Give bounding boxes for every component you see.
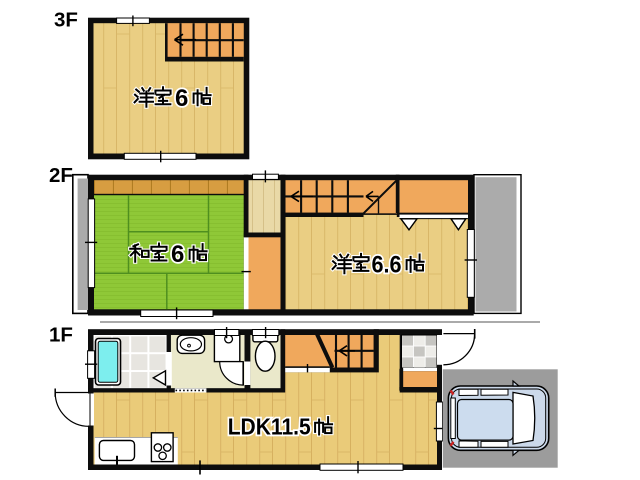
svg-text:1F: 1F: [49, 324, 73, 347]
svg-text:6: 6: [175, 85, 188, 112]
svg-text:2F: 2F: [49, 164, 73, 187]
svg-text:3F: 3F: [54, 9, 78, 32]
svg-text:LDK11.5: LDK11.5: [228, 413, 311, 439]
svg-text:6.6: 6.6: [372, 251, 402, 278]
svg-text:6: 6: [171, 241, 184, 268]
